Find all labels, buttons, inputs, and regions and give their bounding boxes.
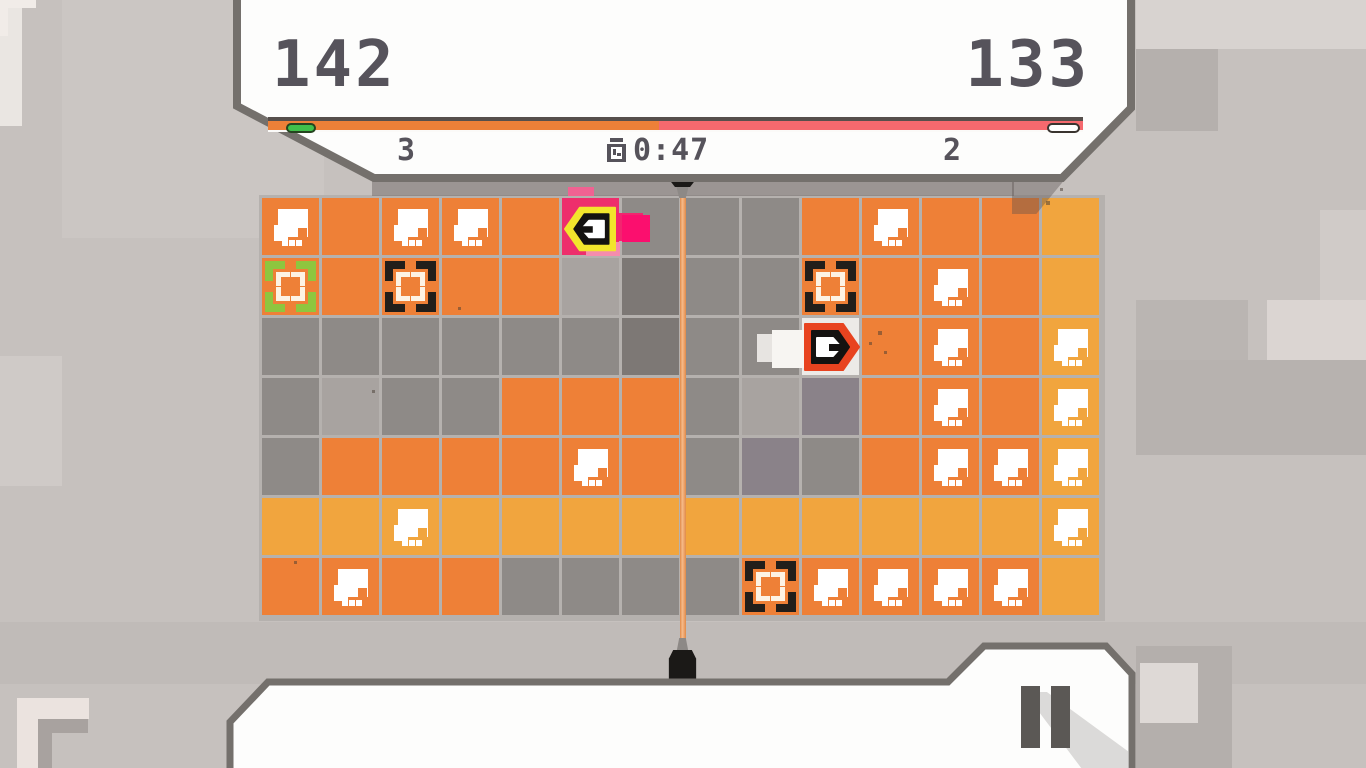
tile-orange <box>862 378 919 435</box>
tile-orange <box>922 438 979 495</box>
tile-orange <box>442 198 499 255</box>
tile-orange <box>862 438 919 495</box>
left-life-count: 3 <box>384 133 428 168</box>
tile-amber <box>262 498 319 555</box>
black-target-brackets-icon <box>805 261 856 312</box>
pause-icon <box>1051 686 1070 748</box>
green-target-brackets-icon <box>265 261 316 312</box>
skull-block-icon <box>1054 449 1088 489</box>
skull-block-icon <box>394 209 428 249</box>
tile-gray <box>682 318 739 375</box>
tile-amber <box>862 498 919 555</box>
right-score: 133 <box>930 28 1090 102</box>
tile-dark-gray <box>622 258 679 315</box>
tile-dark-gray <box>622 318 679 375</box>
tile-gray <box>382 378 439 435</box>
skull-block-icon <box>394 509 428 549</box>
left-player-marker <box>286 123 316 133</box>
tile-amber <box>682 498 739 555</box>
skull-block-icon <box>934 569 968 609</box>
skull-block-icon <box>1054 329 1088 369</box>
tile-orange <box>262 198 319 255</box>
tile-amber <box>1042 498 1099 555</box>
tile-gray <box>682 378 739 435</box>
tile-orange <box>982 558 1039 615</box>
tile-orange <box>802 198 859 255</box>
bar-underline <box>268 130 1083 132</box>
tile-orange <box>862 558 919 615</box>
skull-block-icon <box>874 569 908 609</box>
tile-gray <box>562 558 619 615</box>
dust-speck <box>869 342 872 345</box>
skull-block-icon <box>814 569 848 609</box>
tile-gray <box>682 558 739 615</box>
tile-amber <box>502 498 559 555</box>
tile-orange <box>382 558 439 615</box>
tile-amber <box>982 498 1039 555</box>
tile-orange <box>442 438 499 495</box>
tile-light-gray <box>742 378 799 435</box>
tile-gray <box>262 318 319 375</box>
tile-orange <box>922 558 979 615</box>
game-screen: { "header": { "left_score": "142", "righ… <box>0 0 1366 768</box>
tile-gray <box>622 558 679 615</box>
left-score: 142 <box>272 28 397 102</box>
bg-patch <box>1136 49 1218 131</box>
tile-orange <box>862 198 919 255</box>
tile-orange <box>262 558 319 615</box>
tile-orange <box>382 438 439 495</box>
tile-amber <box>742 498 799 555</box>
tile-amber <box>802 498 859 555</box>
tile-gray <box>742 258 799 315</box>
tile-gray <box>802 438 859 495</box>
bottom-left-corner-decoration-inner <box>38 719 88 768</box>
tile-amber <box>1042 318 1099 375</box>
tile-orange <box>982 438 1039 495</box>
tile-orange <box>502 198 559 255</box>
top-left-corner-decoration <box>0 0 36 36</box>
tile-amber <box>922 498 979 555</box>
tile-gray <box>682 438 739 495</box>
right-life-count: 2 <box>930 133 974 168</box>
tile-orange <box>982 258 1039 315</box>
tile-orange <box>322 558 379 615</box>
tile-orange <box>862 318 919 375</box>
bg-patch <box>1136 300 1248 360</box>
skull-block-icon <box>454 209 488 249</box>
bottom-panel <box>222 638 1144 768</box>
tile-amber <box>562 498 619 555</box>
right-player-marker <box>1047 123 1080 133</box>
skull-block-icon <box>934 449 968 489</box>
skull-block-icon <box>334 569 368 609</box>
clock-icon <box>606 138 628 162</box>
dust-speck <box>294 561 297 564</box>
tile-amber <box>1042 198 1099 255</box>
bg-patch <box>1140 663 1198 723</box>
tile-gray <box>502 558 559 615</box>
tile-gray <box>682 198 739 255</box>
skull-block-icon <box>874 209 908 249</box>
tile-purple-gray <box>742 438 799 495</box>
black-target-brackets-icon <box>745 561 796 612</box>
bg-patch <box>1136 0 1366 49</box>
tile-orange <box>922 378 979 435</box>
tile-orange <box>442 558 499 615</box>
tile-orange <box>322 198 379 255</box>
territory-progress-bar <box>268 117 1083 134</box>
tile-orange <box>622 378 679 435</box>
tile-orange <box>802 258 859 315</box>
tile-amber <box>1042 258 1099 315</box>
dust-speck <box>372 390 375 393</box>
skull-block-icon <box>574 449 608 489</box>
tile-gray <box>262 378 319 435</box>
skull-block-icon <box>994 569 1028 609</box>
skull-block-icon <box>934 269 968 309</box>
tile-orange <box>982 318 1039 375</box>
bar-right-fill <box>659 121 1083 130</box>
ship1-trail <box>622 215 650 242</box>
tile-light-gray <box>562 258 619 315</box>
timer-text: 0:47 <box>633 133 709 168</box>
tile-orange <box>742 558 799 615</box>
tile-orange <box>322 258 379 315</box>
dust-speck <box>878 331 882 335</box>
tile-orange <box>502 378 559 435</box>
tile-orange <box>562 378 619 435</box>
tile-amber <box>322 498 379 555</box>
tile-gray <box>742 198 799 255</box>
tile-orange <box>262 258 319 315</box>
skull-block-icon <box>934 329 968 369</box>
skull-block-icon <box>1054 509 1088 549</box>
bg-patch <box>0 356 62 486</box>
black-target-brackets-icon <box>385 261 436 312</box>
tile-orange <box>322 438 379 495</box>
tile-orange <box>802 558 859 615</box>
bg-patch <box>1136 360 1366 455</box>
tile-light-gray <box>322 378 379 435</box>
bar-left-fill <box>268 121 659 130</box>
pink-dust <box>568 187 594 196</box>
skull-block-icon <box>1054 389 1088 429</box>
tile-orange <box>622 438 679 495</box>
tile-gray <box>442 318 499 375</box>
tile-orange <box>922 198 979 255</box>
tile-orange <box>442 258 499 315</box>
tile-amber <box>382 498 439 555</box>
tile-gray <box>502 318 559 375</box>
tile-gray <box>322 318 379 375</box>
ship2-sprite <box>804 323 860 371</box>
tile-orange <box>922 258 979 315</box>
player1-pink-ship <box>560 196 670 260</box>
tile-orange <box>382 198 439 255</box>
tile-orange <box>922 318 979 375</box>
tile-gray <box>682 258 739 315</box>
skull-block-icon <box>994 449 1028 489</box>
dust-speck <box>1060 188 1063 191</box>
dust-speck <box>1046 201 1050 205</box>
tile-gray <box>382 318 439 375</box>
divider-line <box>680 196 686 648</box>
pause-icon <box>1021 686 1040 748</box>
dust-speck <box>884 351 887 354</box>
tile-orange <box>982 378 1039 435</box>
skull-block-icon <box>274 209 308 249</box>
bg-patch <box>1267 300 1366 362</box>
tile-amber <box>1042 378 1099 435</box>
tile-gray <box>442 378 499 435</box>
tile-orange <box>382 258 439 315</box>
tile-orange <box>562 438 619 495</box>
tile-orange <box>502 258 559 315</box>
tile-amber <box>622 498 679 555</box>
ship1-sprite <box>564 206 616 252</box>
tile-amber <box>442 498 499 555</box>
tile-purple-gray <box>802 378 859 435</box>
pause-button[interactable] <box>1010 676 1082 758</box>
dust-speck <box>458 307 461 310</box>
tile-amber <box>1042 558 1099 615</box>
player2-white-ship <box>735 312 865 376</box>
tile-gray <box>262 438 319 495</box>
tile-orange <box>502 438 559 495</box>
tile-amber <box>1042 438 1099 495</box>
tile-orange <box>862 258 919 315</box>
skull-block-icon <box>934 389 968 429</box>
tile-gray <box>562 318 619 375</box>
